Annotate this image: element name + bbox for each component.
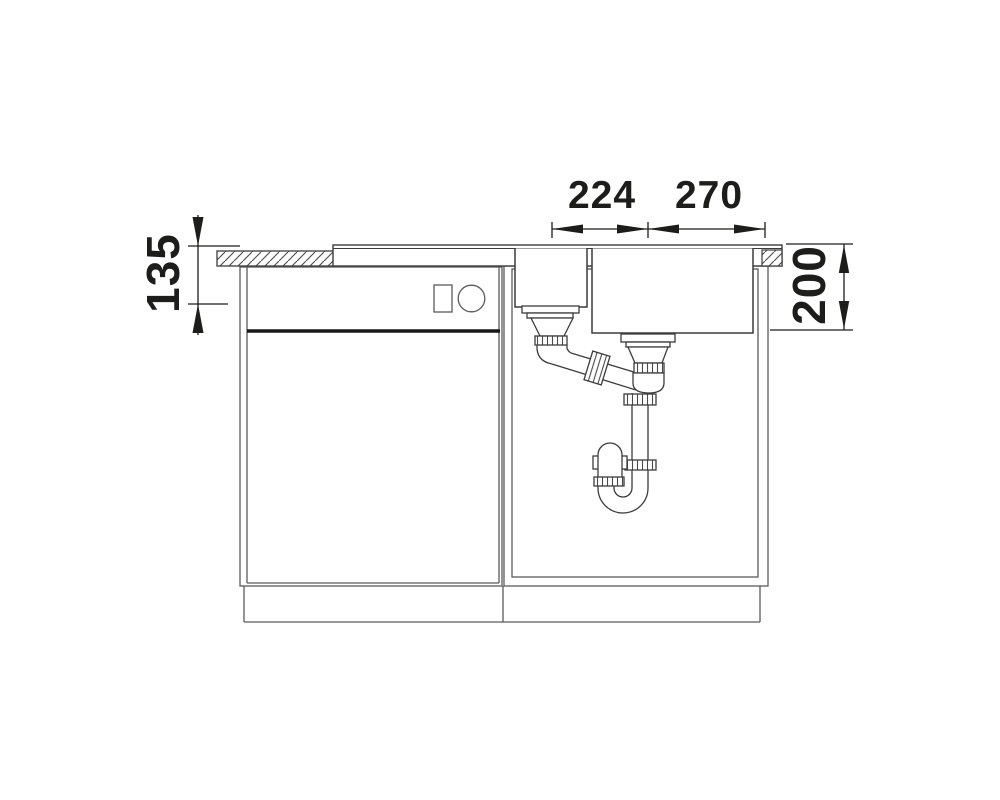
countertop-right-end-cap [762, 250, 782, 266]
dishwasher-cabinet [240, 267, 502, 586]
trap-nut-mid [625, 460, 656, 470]
trap-bell-nut [594, 477, 624, 486]
dimension-label-drain-to-right-edge: 270 [659, 176, 759, 216]
cabinet-plinth [244, 586, 760, 622]
countertop [217, 251, 336, 266]
dimension-top-224-270 [552, 222, 765, 238]
trap-nut-upper [624, 394, 656, 405]
dimension-label-bowl-depth: 200 [786, 245, 832, 325]
countertop-left-section [217, 251, 336, 266]
sink-installation-diagram: 224 270 135 200 [0, 0, 1000, 800]
dimension-label-left-depth: 135 [140, 233, 186, 313]
dimension-left-135 [188, 215, 240, 335]
technical-drawing-canvas [0, 0, 1000, 800]
dimension-label-drain-spacing: 224 [552, 176, 652, 216]
